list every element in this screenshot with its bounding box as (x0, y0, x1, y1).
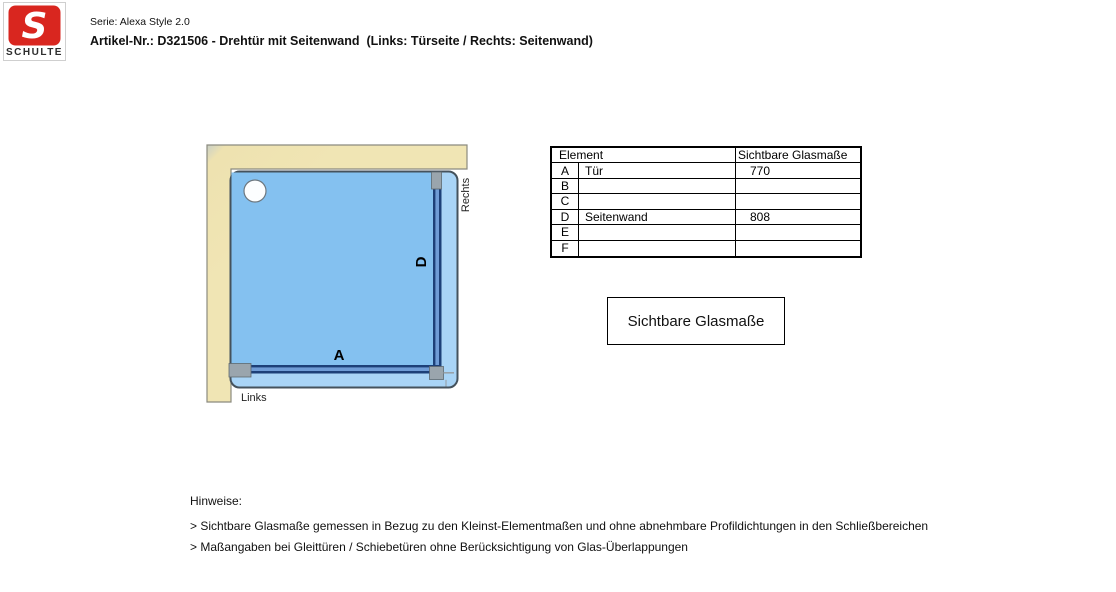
row-d-key: D (552, 210, 579, 225)
row-f-value (736, 241, 860, 256)
row-f-name (579, 241, 736, 256)
svg-text:S: S (22, 6, 48, 46)
article-title: Artikel-Nr.: D321506 - Drehtür mit Seite… (90, 34, 593, 48)
side-panel-glass-center (435, 188, 439, 373)
schulte-s-icon: S (8, 5, 61, 46)
side-panel-dimension-label: D (413, 252, 429, 272)
row-b-name (579, 179, 736, 194)
row-c-key: C (552, 194, 579, 209)
door-glass-center (248, 367, 442, 371)
left-side-label: Links (241, 392, 281, 406)
door-dimension-label: A (327, 347, 351, 363)
row-b-value (736, 179, 860, 194)
row-e-name (579, 225, 736, 240)
drain-icon (244, 180, 266, 202)
glass-dimensions-table: Element Sichtbare Glasmaße A Tür 770 B C… (550, 146, 862, 258)
table-header-element: Element (552, 148, 736, 163)
schulte-logo: S SCHULTE (3, 2, 66, 61)
wall-profile-bracket (432, 172, 442, 189)
series-line: Serie: Alexa Style 2.0 (90, 16, 190, 28)
logo-brand-text: SCHULTE (4, 47, 65, 58)
row-b-key: B (552, 179, 579, 194)
row-a-key: A (552, 163, 579, 178)
table-header-value: Sichtbare Glasmaße (736, 148, 860, 163)
notes-title: Hinweise: (190, 494, 242, 508)
door-hinge-profile (229, 364, 251, 378)
row-f-key: F (552, 241, 579, 256)
datasheet-page: S SCHULTE Serie: Alexa Style 2.0 Artikel… (0, 0, 1116, 592)
note-line-2: > Maßangaben bei Gleittüren / Schiebetür… (190, 540, 688, 554)
tray-inner-area (232, 173, 434, 366)
row-c-value (736, 194, 860, 209)
shower-enclosure-diagram (195, 135, 485, 415)
row-a-value: 770 (736, 163, 860, 178)
note-line-1: > Sichtbare Glasmaße gemessen in Bezug z… (190, 519, 928, 533)
row-e-value (736, 225, 860, 240)
row-d-value: 808 (736, 210, 860, 225)
visible-glass-dimensions-box: Sichtbare Glasmaße (607, 297, 785, 345)
right-side-label: Rechts (460, 175, 474, 215)
row-d-name: Seitenwand (579, 210, 736, 225)
row-a-name: Tür (579, 163, 736, 178)
row-c-name (579, 194, 736, 209)
corner-connector (430, 367, 444, 380)
row-e-key: E (552, 225, 579, 240)
